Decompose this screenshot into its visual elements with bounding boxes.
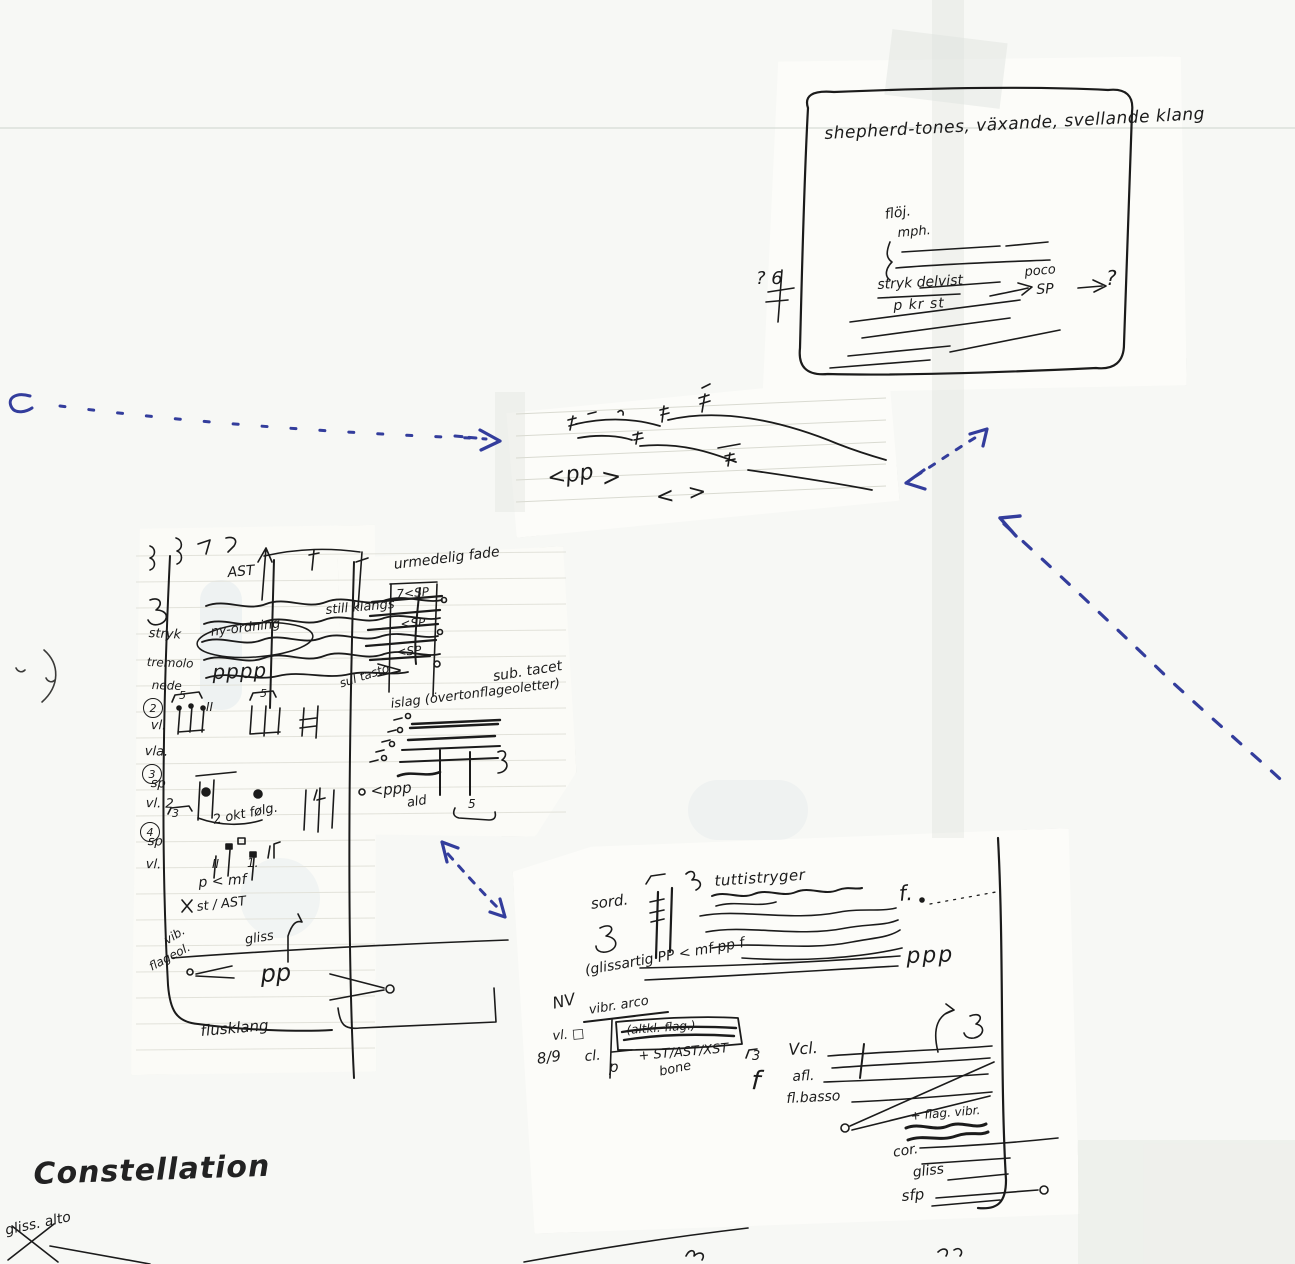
ald-label: ald [406,794,428,810]
blue-arrow-double-right [906,429,987,489]
ast-label: AST [227,564,255,580]
scanned-sketch-page: shepherd-tones, växande, svellande klang… [0,0,1295,1264]
one-label: 1. [247,857,258,869]
mph-label: mph. [897,224,931,240]
ppp-dynamic: ppp [906,944,955,968]
bottom-edge-marks [8,1224,962,1264]
f-dot-dynamic: f. [898,883,913,905]
p-dynamic: p [609,1060,619,1075]
decresc-dynamic: > [600,464,623,490]
question-mark-right: ? [1106,268,1117,288]
staff-fragment-paper [502,376,901,538]
bottom-fragment-paper [512,828,1080,1234]
hairpin-close: > [687,481,707,505]
cl-label: cl. [584,1049,601,1064]
blue-arrow-diagonal-long [1000,516,1290,788]
section-4-circled-number: 4 [140,822,160,842]
nv-label: NV [551,991,577,1011]
crossed-note: gliss. alto [4,1210,72,1238]
sord-label: sord. [590,892,629,911]
flute-label: flöj. [884,204,912,221]
sp-mark-2: <SP [400,616,426,630]
sec2-vla-label: vla. [145,745,169,759]
stryk-label: stryk [148,627,181,642]
f-tall-dynamic: f [751,1068,762,1094]
section-2-circled-number: 2 [143,698,163,718]
tuplet3-number-bottom: 3 [752,1050,760,1063]
vcl-label: Vcl. [788,1040,818,1058]
tuplet3-number: 3 [172,808,179,819]
sec2-vl-label: vl. [151,719,167,733]
sp-mark-1: 7<SP [396,586,429,600]
edge-scribbles [16,650,56,702]
page-title: Constellation [33,1152,271,1190]
tuplet5-a-number: 5 [179,690,186,701]
eight-nine-label: 8/9 [536,1049,562,1067]
blue-arrow-double-center [442,842,505,917]
tuplet5-low-number: 5 [468,798,476,810]
hairpin-open: < [655,485,675,509]
pp-dynamic: pp [260,960,292,986]
sp-mark-3: <SP [396,644,422,658]
question-mark-left: ? 6 [756,270,783,288]
section-3-circled-number: 3 [142,764,162,784]
vl-square-label: vl. □ [552,1027,585,1043]
shepherd-fragment-paper [758,48,1193,403]
tremolo-label: tremolo [147,656,194,670]
sec3-vl2-label: vl. 2 [146,797,174,811]
p-mf-dynamic: p < mf [198,873,247,890]
sp-label: SP [1036,282,1054,297]
sec4-vl-label: vl. [146,858,162,872]
roman-two-a: II [206,701,213,713]
pppp-dynamic: pppp [212,660,267,682]
tuplet5-b-number: 5 [260,688,267,699]
roman-two-b: II [212,858,219,870]
sfp-dynamic: sfp [901,1187,925,1204]
fl-basso-label: fl.basso [786,1089,841,1106]
smudge [688,780,808,840]
poco-label: poco [1024,263,1056,279]
afl-label: afl. [792,1069,815,1084]
gliss-label-bottom: gliss [912,1162,945,1180]
pkrst-label: p kr st [893,296,945,313]
nede-label: nede [152,679,182,692]
tape-strip [1078,1140,1295,1264]
blue-arrow-left-long [10,395,500,450]
cor-label: cor. [892,1142,919,1160]
